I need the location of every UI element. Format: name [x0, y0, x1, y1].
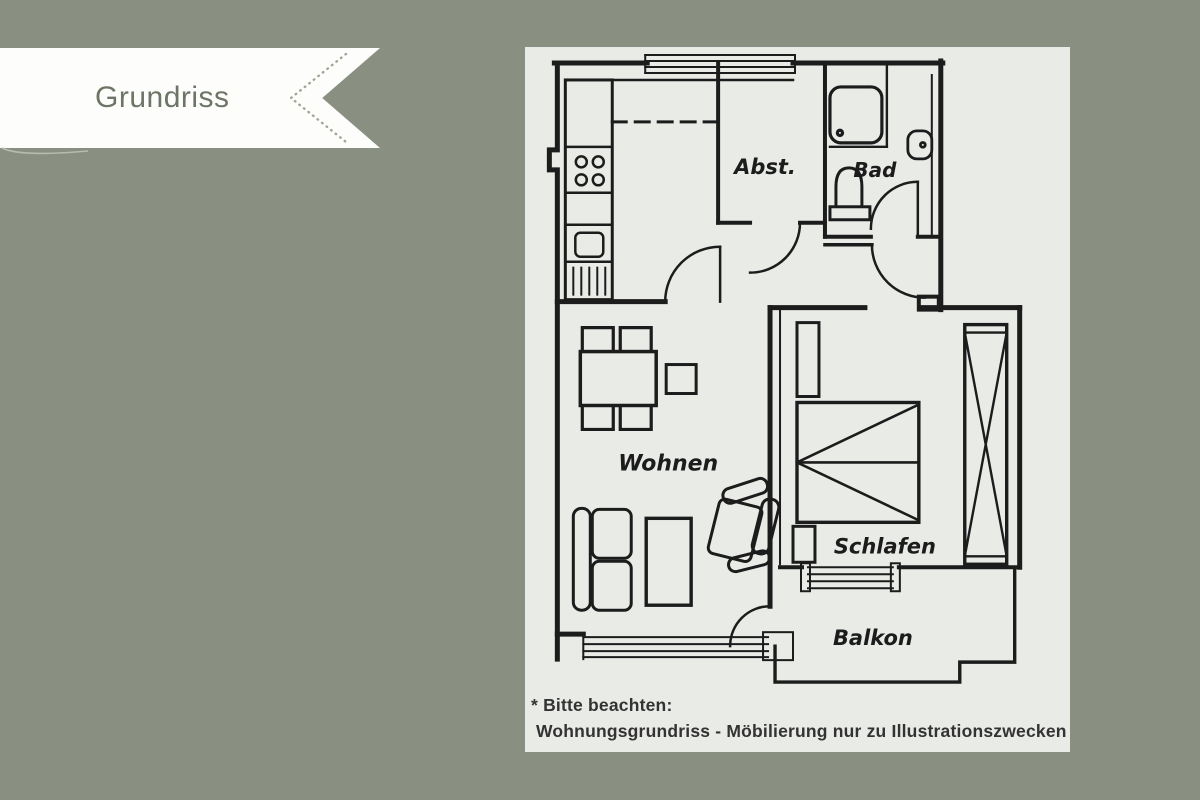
- grundriss-banner: Grundriss: [0, 48, 380, 148]
- chair: [620, 407, 651, 429]
- wardrobe: [965, 325, 1007, 565]
- sink-icon: [575, 233, 603, 257]
- floorplan-drawing: Abst. Bad Wohnen Schlafen Balkon: [525, 47, 1070, 752]
- top-window: [612, 55, 795, 80]
- drainer-lines: [573, 268, 605, 295]
- bedroom-door-arc: [872, 245, 925, 298]
- bad-door-arc: [871, 182, 918, 229]
- kitchen-counter: [565, 80, 718, 300]
- banner-curl-decoration: [0, 146, 100, 162]
- note-line-1: * Bitte beachten:: [531, 695, 672, 716]
- room-label-abst: Abst.: [732, 155, 796, 179]
- side-table: [666, 365, 696, 394]
- chair: [582, 328, 613, 350]
- abst-door-arc: [750, 223, 800, 273]
- room-label-wohnen: Wohnen: [618, 451, 718, 476]
- sofa: [573, 508, 631, 610]
- note-line-2: Wohnungsgrundriss - Möbilierung nur zu I…: [536, 721, 1067, 742]
- nightstand: [793, 526, 815, 562]
- bed: [797, 402, 919, 522]
- interior-walls: [557, 63, 1019, 606]
- bathroom-fixtures: [830, 63, 932, 220]
- dining-table: [580, 352, 656, 406]
- chair: [620, 328, 651, 350]
- chevron-dotted-icon: [0, 48, 380, 148]
- chair: [582, 407, 613, 429]
- living-room-window: [583, 632, 793, 660]
- shower-icon: [830, 63, 887, 147]
- stove-burners-icon: [576, 156, 604, 185]
- bedroom-window: [801, 563, 900, 591]
- floorplan-panel: Abst. Bad Wohnen Schlafen Balkon * Bitte…: [525, 47, 1070, 752]
- coffee-table: [646, 518, 691, 605]
- doors: [665, 182, 925, 646]
- room-label-balkon: Balkon: [833, 626, 913, 650]
- dining-set: [580, 328, 656, 430]
- wash-basin-icon: [908, 131, 932, 159]
- room-label-bad: Bad: [853, 158, 897, 182]
- room-label-schlafen: Schlafen: [834, 534, 936, 558]
- nightstand: [797, 323, 819, 397]
- page-background: { "banner": { "title": "Grundriss" }, "p…: [0, 0, 1200, 800]
- kitchen-door-arc: [665, 247, 720, 302]
